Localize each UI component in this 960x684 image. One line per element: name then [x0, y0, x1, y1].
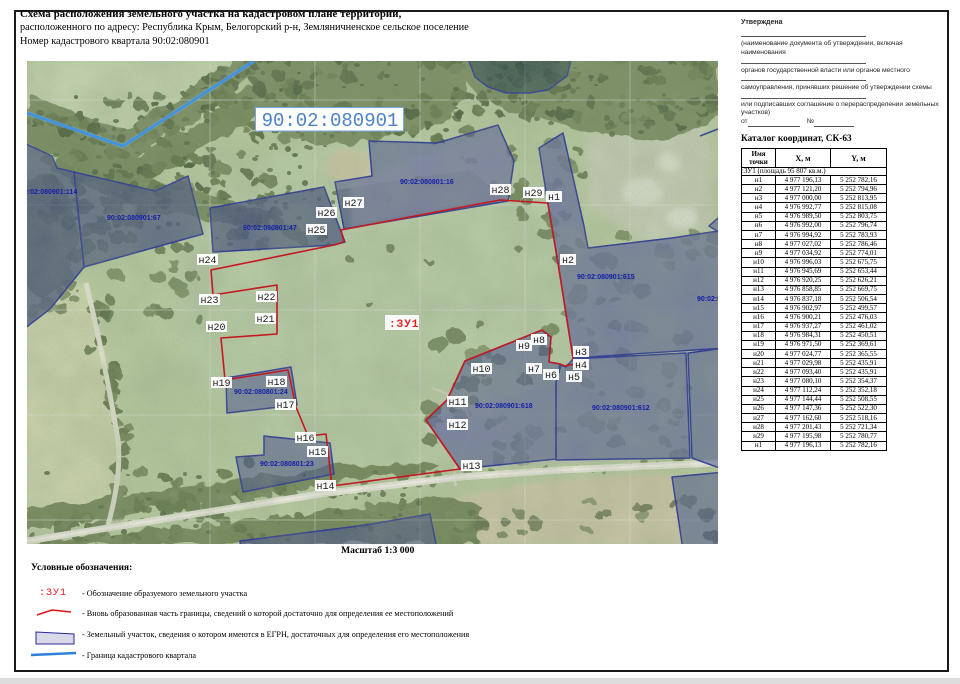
svg-text:н5: н5 — [568, 373, 580, 384]
svg-text:90:02:080801:16: 90:02:080801:16 — [400, 179, 454, 186]
svg-text:90:02:080901:612: 90:02:080901:612 — [592, 405, 650, 412]
svg-text:н1: н1 — [548, 193, 560, 204]
svg-text:н15: н15 — [308, 448, 326, 459]
svg-text:н4: н4 — [575, 361, 587, 372]
svg-text:90:02:080801:24: 90:02:080801:24 — [234, 389, 288, 396]
svg-text:н6: н6 — [545, 371, 557, 382]
svg-text:90:02:080901: 90:02:080901 — [262, 110, 399, 132]
svg-text:н18: н18 — [267, 378, 285, 389]
svg-text:н12: н12 — [448, 421, 466, 432]
svg-text:90:02:080801:47: 90:02:080801:47 — [243, 225, 297, 232]
svg-text:н11: н11 — [448, 398, 466, 409]
svg-text:н22: н22 — [257, 293, 275, 304]
svg-text:н9: н9 — [518, 342, 530, 353]
svg-text:н2: н2 — [562, 256, 574, 267]
svg-text:н25: н25 — [307, 226, 325, 237]
svg-text:н3: н3 — [575, 348, 587, 359]
svg-text:н16: н16 — [296, 434, 314, 445]
svg-text:90:02:0: 90:02:0 — [697, 296, 718, 303]
svg-text:н23: н23 — [200, 296, 218, 307]
svg-text:90:02:080801:23: 90:02:080801:23 — [260, 461, 314, 468]
svg-text:90:02:080901:615: 90:02:080901:615 — [577, 274, 635, 281]
svg-text::ЗУ1: :ЗУ1 — [389, 319, 419, 331]
svg-text:н19: н19 — [212, 379, 230, 390]
svg-text:н29: н29 — [524, 189, 542, 200]
svg-text:н13: н13 — [462, 462, 480, 473]
svg-text:н26: н26 — [317, 209, 335, 220]
svg-text:н10: н10 — [472, 365, 490, 376]
svg-text:н7: н7 — [528, 365, 540, 376]
svg-text:н8: н8 — [533, 336, 545, 347]
svg-text:н20: н20 — [207, 323, 225, 334]
svg-text:н28: н28 — [491, 186, 509, 197]
svg-text:90:02:080901:67: 90:02:080901:67 — [107, 215, 161, 222]
svg-text:90:02:080901:618: 90:02:080901:618 — [475, 403, 533, 410]
svg-text:90:02:080901:114: 90:02:080901:114 — [27, 189, 77, 196]
svg-text:н17: н17 — [276, 401, 294, 412]
svg-text:н14: н14 — [316, 482, 334, 493]
svg-text:н21: н21 — [256, 315, 274, 326]
svg-text:н27: н27 — [344, 199, 362, 210]
svg-text:н24: н24 — [198, 256, 216, 267]
